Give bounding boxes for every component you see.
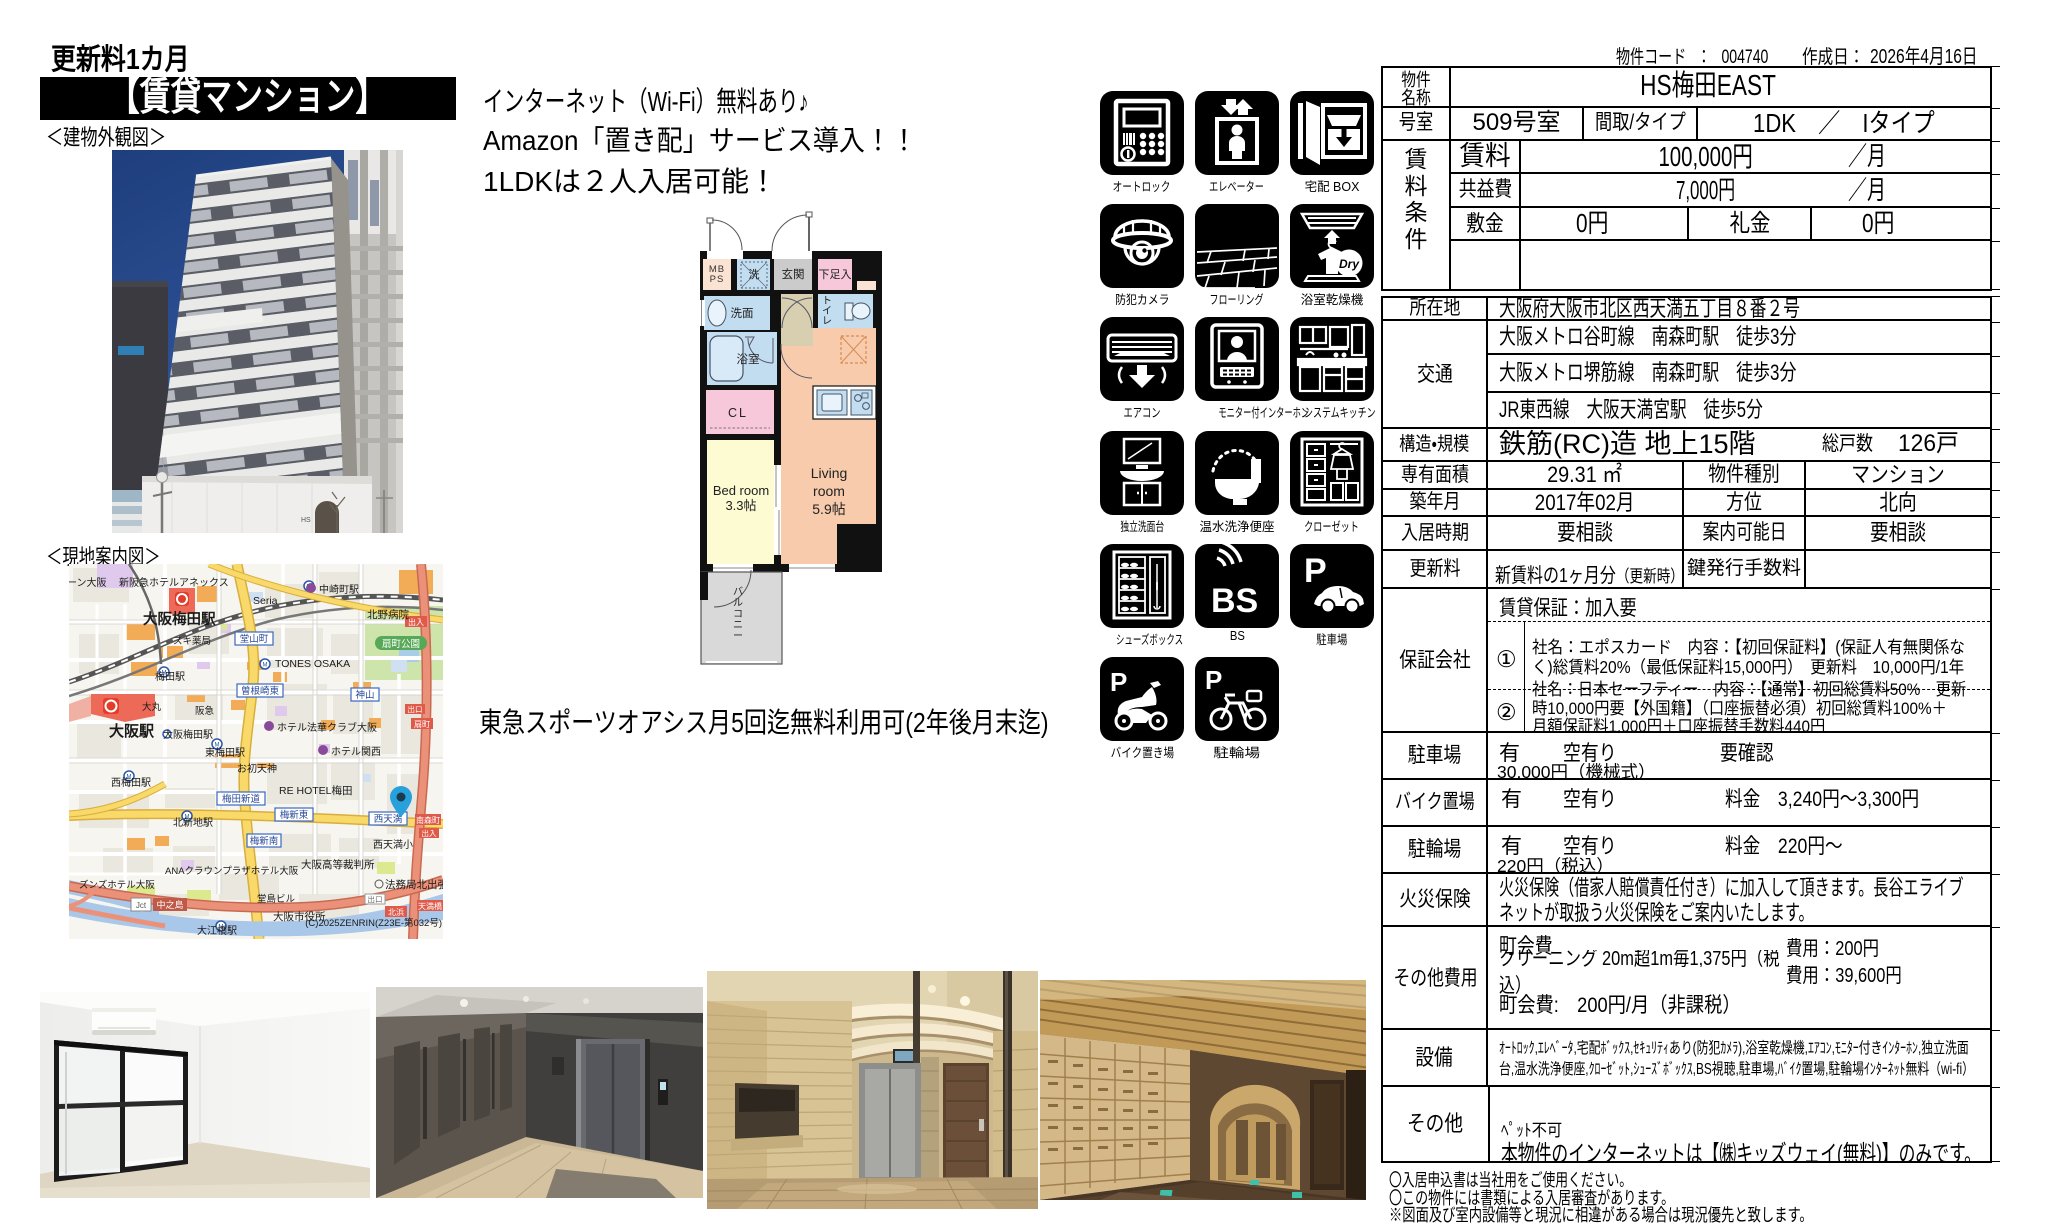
svg-text:ル: ル — [733, 598, 743, 609]
svg-text:Jct: Jct — [136, 901, 147, 910]
svg-text:洗面: 洗面 — [731, 307, 754, 320]
svg-text:大阪高等裁判所: 大阪高等裁判所 — [301, 858, 375, 871]
svg-text:浴室: 浴室 — [737, 353, 760, 366]
svg-text:ーン大阪: ーン大阪 — [69, 576, 107, 589]
svg-text:Seria: Seria — [253, 595, 278, 607]
svg-text:出口: 出口 — [368, 894, 383, 904]
svg-text:西梅田駅: 西梅田駅 — [111, 776, 151, 789]
svg-text:M: M — [263, 663, 268, 669]
svg-text:大江橋駅: 大江橋駅 — [197, 924, 237, 937]
svg-text:大阪駅: 大阪駅 — [109, 722, 155, 740]
svg-text:レ: レ — [822, 316, 832, 327]
svg-text:阪急: 阪急 — [195, 705, 215, 717]
svg-text:梅新東: 梅新東 — [280, 809, 309, 821]
svg-text:P: P — [1110, 667, 1127, 697]
svg-text:扇町: 扇町 — [414, 720, 430, 729]
svg-text:北野病院: 北野病院 — [367, 609, 409, 621]
svg-text:CL: CL — [728, 406, 748, 420]
svg-text:5.9帖: 5.9帖 — [812, 501, 845, 517]
svg-text:Bed room: Bed room — [713, 483, 769, 498]
svg-text:西天満小: 西天満小 — [373, 839, 413, 851]
svg-text:扇町公園: 扇町公園 — [382, 639, 420, 650]
svg-text:梅新南: 梅新南 — [250, 835, 279, 847]
svg-text:西天満: 西天満 — [374, 814, 403, 825]
svg-text:堂山町: 堂山町 — [240, 633, 269, 645]
svg-text:BS: BS — [1211, 582, 1258, 620]
svg-text:ニ: ニ — [733, 620, 743, 631]
svg-text:Dry: Dry — [1339, 257, 1360, 271]
svg-text:ズンズホテル大阪: ズンズホテル大阪 — [79, 879, 155, 891]
svg-text:中崎町駅: 中崎町駅 — [319, 583, 359, 596]
svg-text:東梅田駅: 東梅田駅 — [205, 746, 245, 759]
svg-text:ANAクラウンプラザホテル大阪: ANAクラウンプラザホテル大阪 — [165, 865, 299, 877]
svg-text:出入: 出入 — [422, 828, 437, 838]
svg-text:HS: HS — [301, 517, 311, 524]
svg-text:中之島: 中之島 — [156, 899, 183, 910]
svg-text:玄関: 玄関 — [782, 268, 805, 281]
svg-text:TONES OSAKA: TONES OSAKA — [275, 658, 350, 670]
svg-text:曽根崎東: 曽根崎東 — [241, 685, 280, 697]
svg-text:神山: 神山 — [355, 689, 374, 701]
svg-text:下足入: 下足入 — [819, 269, 852, 281]
svg-text:コ: コ — [733, 609, 743, 620]
svg-text:PS: PS — [710, 274, 725, 285]
svg-text:大丸: 大丸 — [142, 701, 162, 713]
svg-text:P: P — [1205, 665, 1222, 695]
svg-text:Living: Living — [811, 465, 848, 481]
svg-text:大阪梅田駅: 大阪梅田駅 — [163, 728, 213, 741]
svg-text:法務局北出張所: 法務局北出張所 — [385, 878, 443, 891]
svg-text:出口: 出口 — [408, 704, 423, 714]
svg-text:ホテル関西: ホテル関西 — [331, 746, 381, 758]
svg-text:ー: ー — [733, 631, 743, 642]
svg-text:大阪梅田駅: 大阪梅田駅 — [143, 610, 216, 628]
svg-text:梅田駅: 梅田駅 — [155, 670, 185, 683]
svg-text:洗: 洗 — [749, 268, 760, 281]
svg-text:(C)2025ZENRIN(Z23E-第032号): (C)2025ZENRIN(Z23E-第032号) — [305, 917, 442, 929]
svg-text:3.3帖: 3.3帖 — [725, 498, 756, 513]
svg-text:出入: 出入 — [408, 617, 424, 627]
svg-text:梅田新道: 梅田新道 — [222, 793, 261, 805]
svg-text:P: P — [1304, 552, 1327, 590]
svg-text:北新地駅: 北新地駅 — [173, 816, 213, 829]
svg-text:スキ薬局: スキ薬局 — [173, 635, 211, 647]
svg-text:ホテル法華クラブ大阪: ホテル法華クラブ大阪 — [277, 721, 377, 734]
svg-text:バ: バ — [733, 586, 743, 598]
svg-text:新阪急ホテルアネックス: 新阪急ホテルアネックス — [119, 576, 229, 589]
svg-text:北浜: 北浜 — [388, 907, 404, 917]
svg-text:天満橋: 天満橋 — [418, 901, 442, 911]
svg-text:RE HOTEL梅田: RE HOTEL梅田 — [279, 784, 353, 797]
svg-text:room: room — [813, 483, 845, 499]
svg-text:お初天神: お初天神 — [237, 762, 277, 775]
svg-text:堂島ビル: 堂島ビル — [257, 893, 296, 905]
svg-text:南森町: 南森町 — [416, 815, 440, 825]
